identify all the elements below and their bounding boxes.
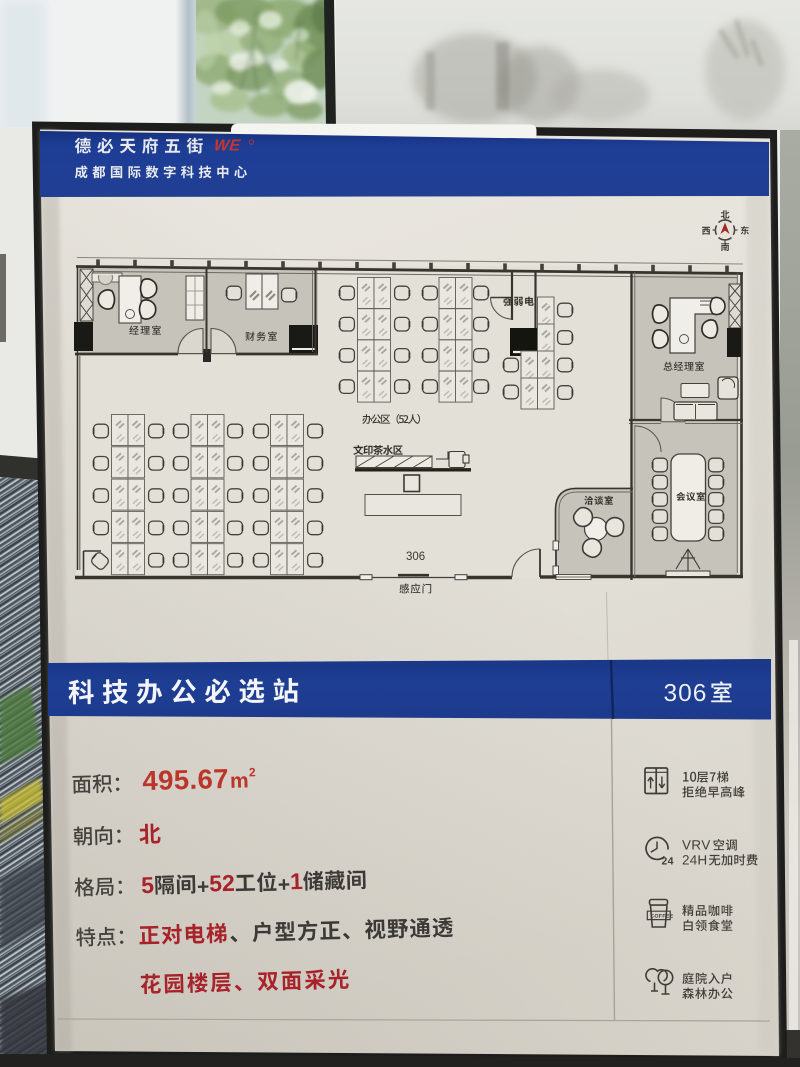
svg-text:306: 306 bbox=[406, 551, 425, 563]
